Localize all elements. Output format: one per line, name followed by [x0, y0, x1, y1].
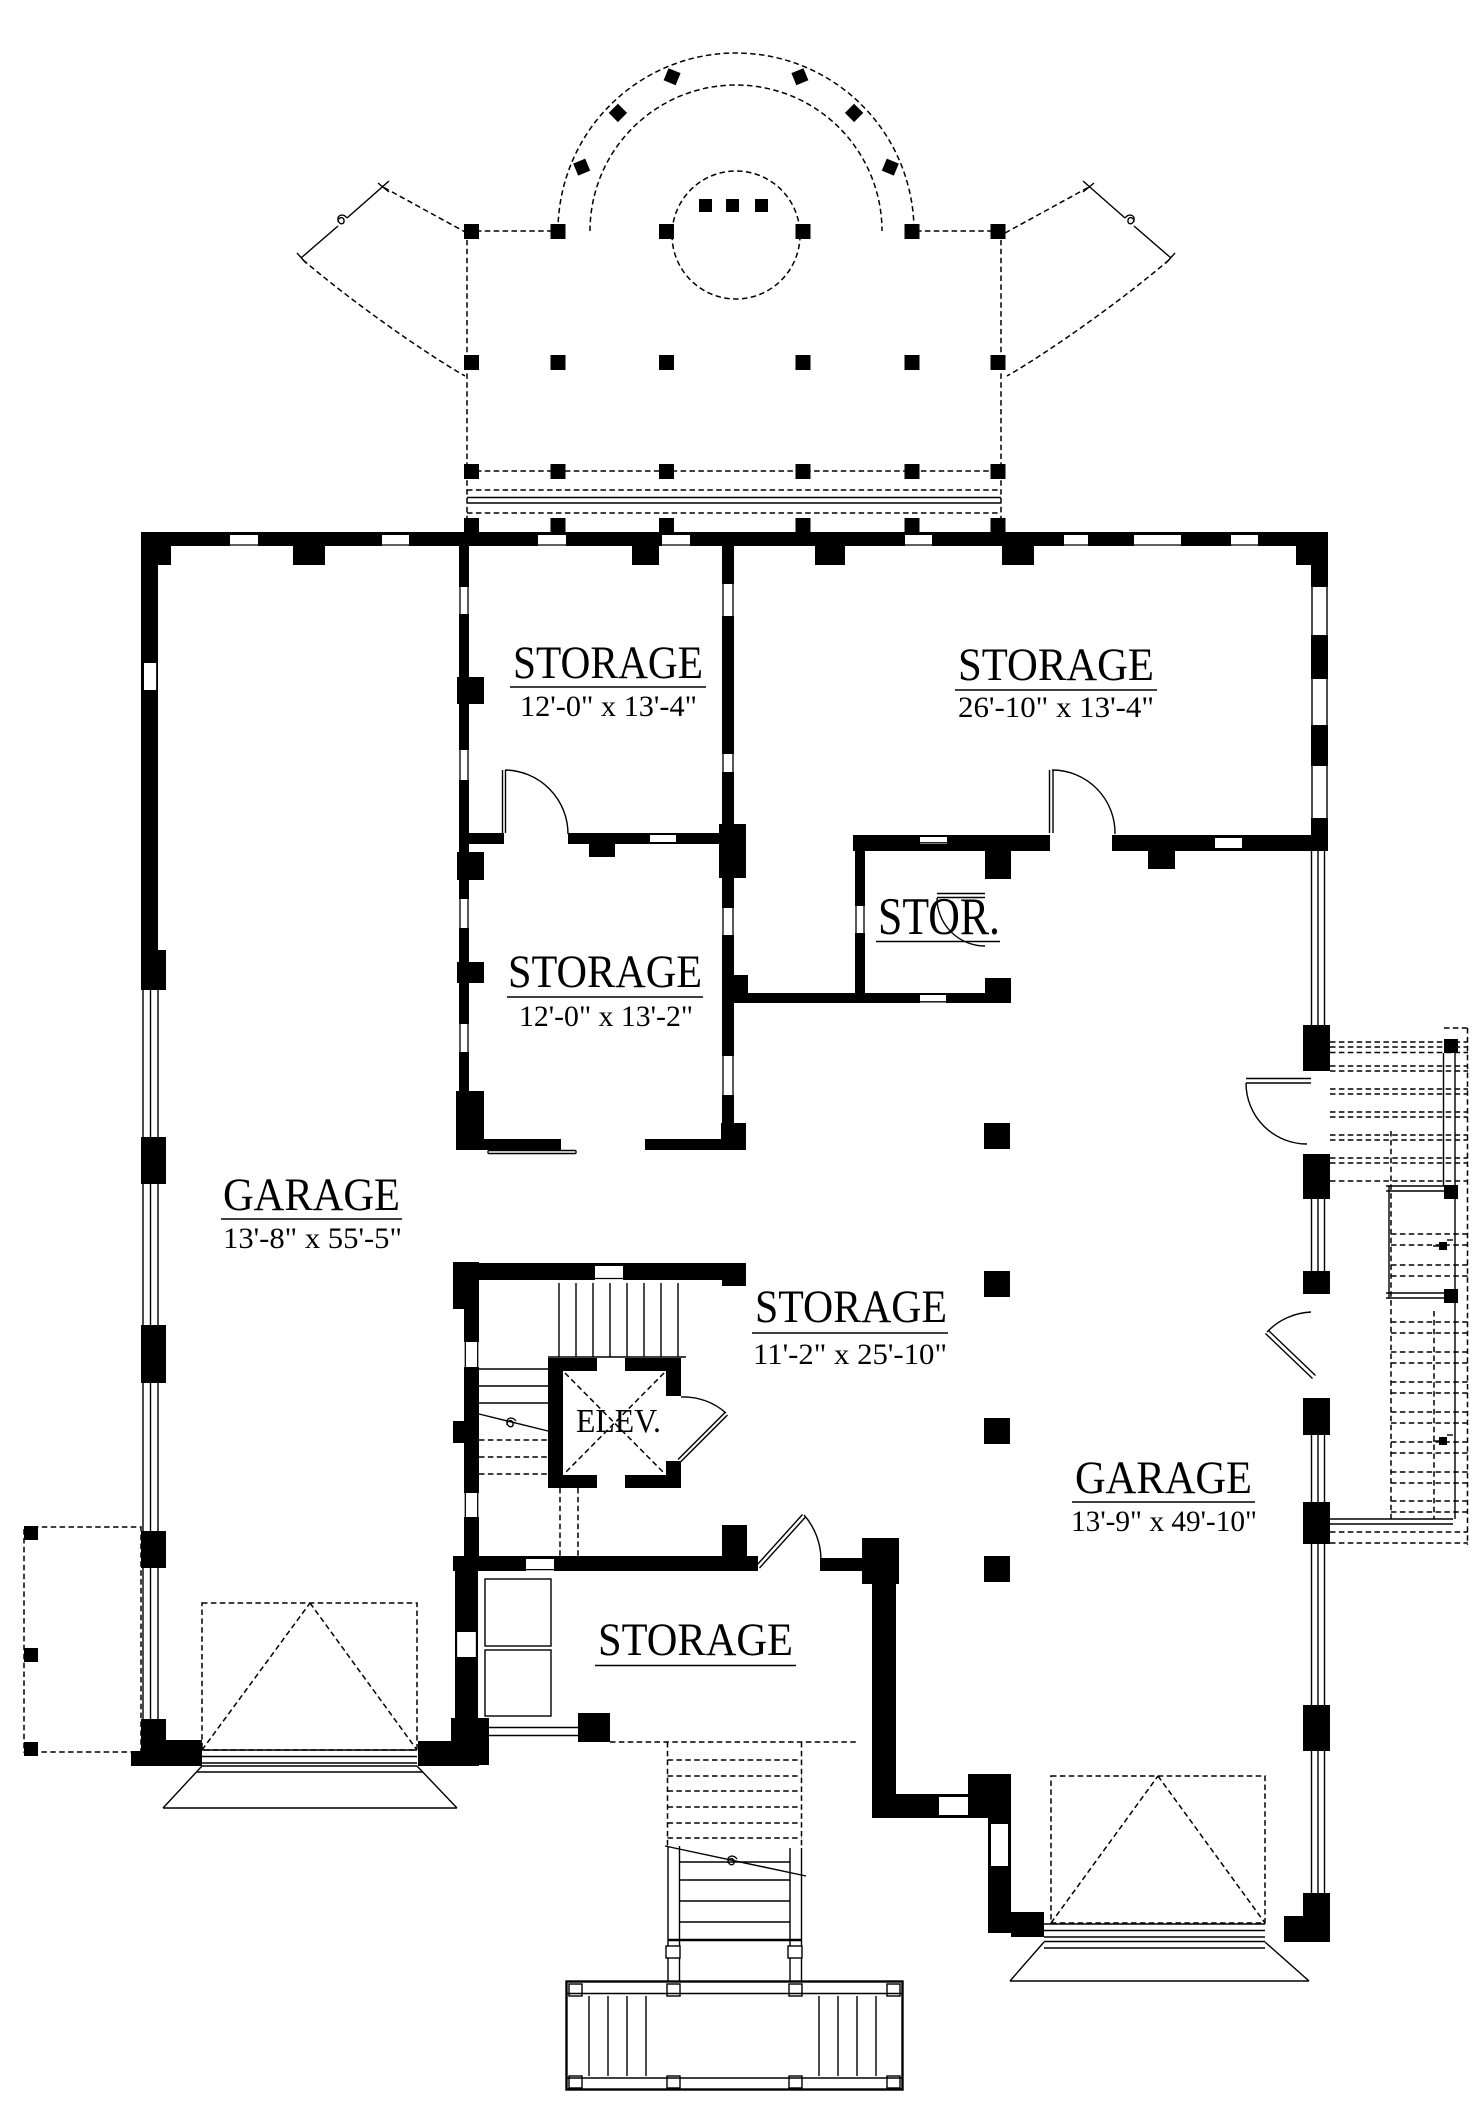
svg-text:12'-0" x 13'-4": 12'-0" x 13'-4"	[520, 690, 697, 723]
svg-text:STOR.: STOR.	[878, 888, 1000, 946]
svg-text:STORAGE: STORAGE	[508, 946, 702, 998]
svg-text:STORAGE: STORAGE	[958, 639, 1154, 691]
svg-text:13'-9" x 49'-10": 13'-9" x 49'-10"	[1071, 1505, 1257, 1538]
svg-text:GARAGE: GARAGE	[223, 1169, 400, 1221]
svg-text:GARAGE: GARAGE	[1075, 1452, 1252, 1504]
svg-text:12'-0" x 13'-2": 12'-0" x 13'-2"	[519, 1000, 693, 1033]
svg-text:13'-8" x 55'-5": 13'-8" x 55'-5"	[223, 1222, 402, 1255]
svg-text:11'-2" x 25'-10": 11'-2" x 25'-10"	[753, 1338, 947, 1371]
svg-text:STORAGE: STORAGE	[755, 1281, 947, 1333]
svg-text:26'-10" x 13'-4": 26'-10" x 13'-4"	[958, 691, 1154, 724]
svg-text:ELEV.: ELEV.	[576, 1403, 661, 1440]
svg-text:STORAGE: STORAGE	[513, 637, 703, 689]
svg-text:STORAGE: STORAGE	[598, 1614, 793, 1666]
